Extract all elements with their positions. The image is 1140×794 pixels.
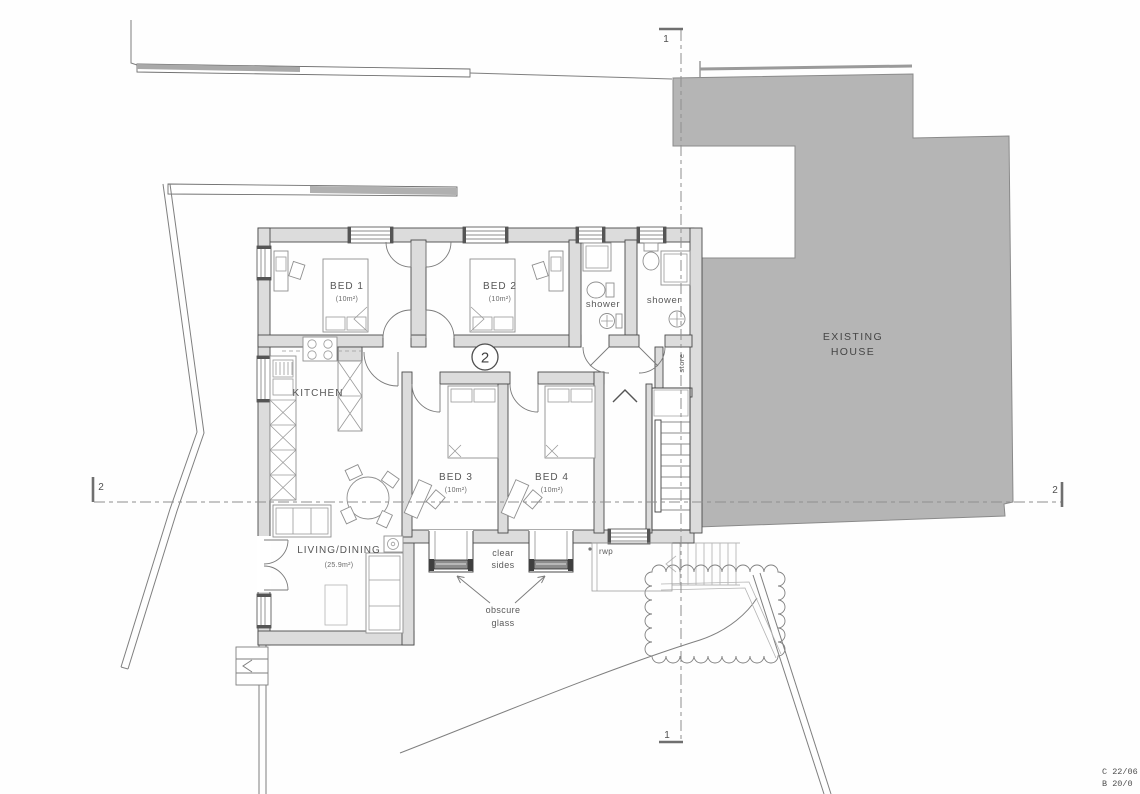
clear-sides-label-line1: clear <box>492 548 514 558</box>
obscure-glass-label-line1: obscure <box>486 605 521 615</box>
window-shower1-top <box>576 227 605 243</box>
boundary-zigzag-outer <box>121 184 197 667</box>
clear-sides-label-line2: sides <box>491 560 514 570</box>
section1-bottom-label: 1 <box>664 730 670 741</box>
wall-stair-left <box>646 384 652 533</box>
bed4-area-label: (10m²) <box>541 487 563 494</box>
unit-number-label: 2 <box>481 350 489 367</box>
sofa-right-icon <box>366 553 403 633</box>
new-building <box>257 227 702 645</box>
bed2-door <box>426 310 454 338</box>
dining-set <box>341 465 400 528</box>
shower-right-label: shower <box>647 295 681 306</box>
rwp-label: rwp <box>599 547 613 556</box>
basin-icon <box>600 314 623 329</box>
window-bed2-top <box>463 227 508 243</box>
section2-left-label: 2 <box>98 482 104 493</box>
window-hall-bottom <box>608 529 650 544</box>
window-bed1-top <box>348 227 393 243</box>
existing-house-footprint <box>673 74 1013 527</box>
bed3-door <box>412 384 440 412</box>
shower-tray-icon <box>661 251 690 285</box>
existing-house-label-line1: EXISTING <box>823 331 883 343</box>
bed2-label: BED 2 <box>483 281 517 292</box>
window-living-left <box>257 594 271 628</box>
kitchen-counter <box>270 356 296 500</box>
bed3-area-label: (10m²) <box>445 487 467 494</box>
basin-icon <box>669 311 685 327</box>
coffee-table-icon <box>325 585 347 625</box>
stove-flue-icon <box>384 536 403 552</box>
external-stair <box>666 543 740 585</box>
bay-window-bed4 <box>529 530 573 572</box>
shower1-door <box>583 347 609 373</box>
living-door <box>364 352 398 386</box>
rwp-dot-icon <box>588 547 591 550</box>
section2-right-label: 2 <box>1052 485 1058 496</box>
chair-icon <box>426 490 445 509</box>
window-kitchen-left <box>257 356 271 402</box>
revision-row1: C 22/06 <box>1102 767 1138 777</box>
living-dining-area-label: (25.9m²) <box>325 562 354 569</box>
shower-left-label: shower <box>586 299 620 310</box>
section1-top-label: 1 <box>663 34 669 45</box>
deck-inner-line-a <box>661 582 781 654</box>
shower1-fittings <box>583 243 622 329</box>
shower-tray-icon <box>583 243 611 271</box>
wall-shower1-left <box>569 240 581 347</box>
chair-icon <box>345 465 362 481</box>
bed2-area-label: (10m²) <box>489 296 511 303</box>
bed3-label: BED 3 <box>439 472 473 483</box>
garden-path-curve <box>400 598 757 753</box>
shower2-fittings <box>643 243 690 327</box>
boundary-zigzag-inner <box>128 184 204 669</box>
window-bed1-left <box>257 246 271 280</box>
obscure-glass-leader-arrows <box>457 576 545 603</box>
wall-living-right <box>402 537 414 645</box>
existing-house-label-line2: HOUSE <box>831 346 875 358</box>
living-dining-label: LIVING/DINING <box>297 545 381 556</box>
wall-corridor-b <box>411 335 426 347</box>
boundary-line-topleft <box>131 20 137 65</box>
boundary-zigzag-cap <box>121 667 128 669</box>
chair-icon <box>532 261 548 279</box>
stair-direction-arrow-icon <box>666 556 676 572</box>
wall-right <box>690 228 702 533</box>
window-shower2-top <box>637 227 666 243</box>
path-diagonal-b <box>760 573 831 794</box>
stair-handrail <box>655 420 661 512</box>
bed1-door <box>383 310 411 338</box>
boundary-line-to-house <box>470 73 672 79</box>
revision-notes: C 22/06 B 20/0 <box>1102 767 1138 789</box>
bed4-furniture <box>501 386 595 518</box>
wall-bed1-bed2-divider <box>411 240 426 335</box>
toilet-icon <box>587 282 614 298</box>
bed1-area-label: (10m²) <box>336 296 358 303</box>
bed-icon <box>448 386 498 458</box>
wall-shower-divider <box>625 240 637 335</box>
path-diagonal-a <box>753 575 824 794</box>
stove-icon <box>303 337 337 361</box>
wall-bed4-right <box>594 372 604 533</box>
fence-topright <box>700 66 912 69</box>
bed1-label: BED 1 <box>330 281 364 292</box>
wall-kitchen-peninsula-stub <box>338 347 362 361</box>
stair-up-arrow-icon <box>613 390 637 402</box>
kitchen-label: KITCHEN <box>293 388 344 399</box>
bed4-label: BED 4 <box>535 472 569 483</box>
chair-icon <box>523 490 542 509</box>
external-features <box>645 543 785 663</box>
wall-shower-bottom-a <box>609 335 639 347</box>
wall-corridor-c <box>454 335 581 347</box>
wall-shower-bottom-b <box>665 335 692 347</box>
unit-number-badge: 2 <box>472 344 498 370</box>
floor-plan-drawing: EXISTING HOUSE <box>0 0 1140 794</box>
wall-beds-top-a <box>440 372 510 384</box>
chair-icon <box>289 261 305 279</box>
revision-row2: B 20/0 <box>1102 779 1133 789</box>
gate-marker <box>236 647 268 685</box>
staircase <box>652 388 690 530</box>
bed-icon <box>545 386 595 458</box>
sofa-top-icon <box>273 505 331 537</box>
toilet-icon <box>643 243 659 270</box>
existing-house: EXISTING HOUSE <box>673 74 1013 527</box>
bed3-furniture <box>404 386 498 518</box>
bay-window-bed3 <box>429 530 473 572</box>
bed4-door <box>510 384 538 412</box>
deck-scalloped-edge <box>645 565 785 663</box>
obscure-glass-label-line2: glass <box>491 618 514 628</box>
